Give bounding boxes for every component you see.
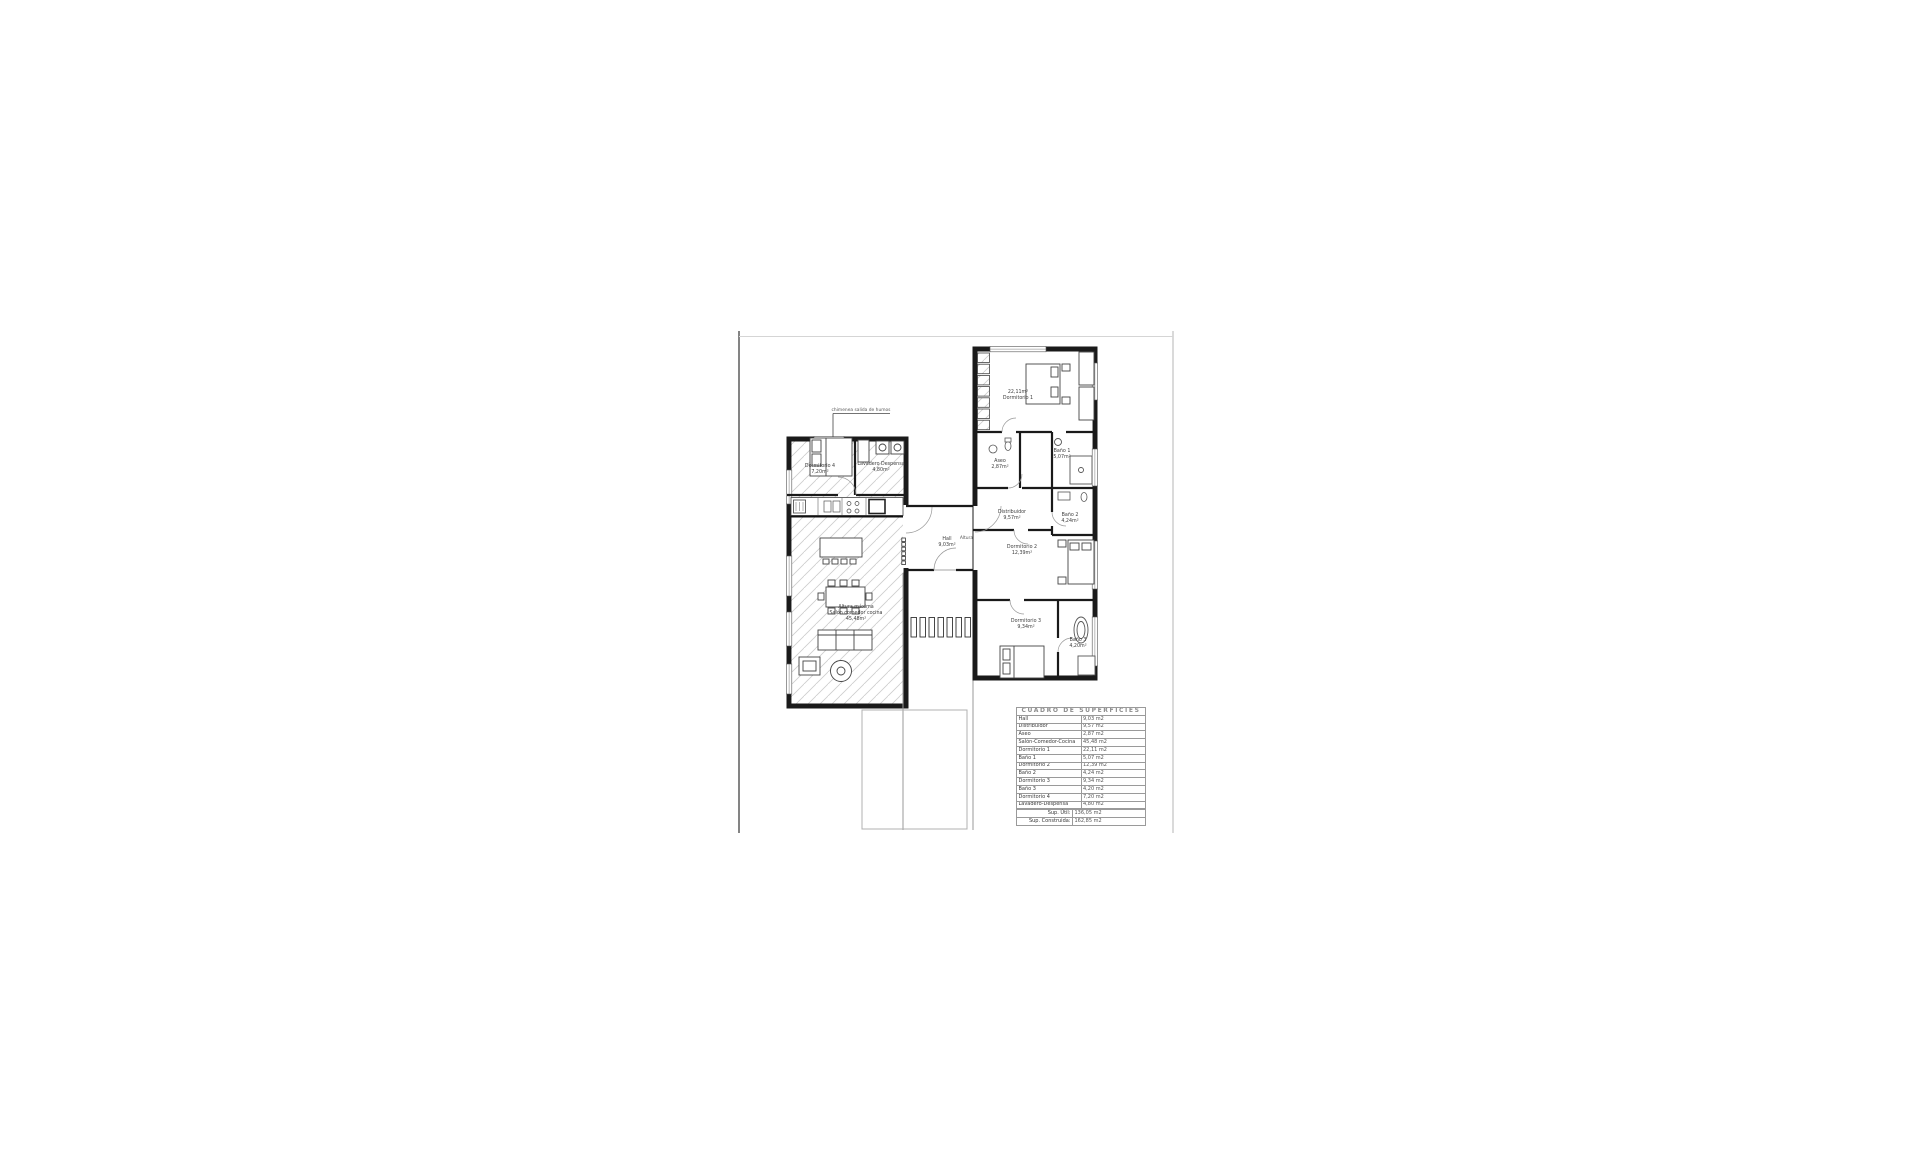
room-label-bano1-name: Baño 1 [1054, 448, 1071, 454]
wardrobe-strip [978, 353, 990, 430]
total-label: Sup. Útil: [1017, 810, 1073, 818]
kitchen-island [820, 538, 862, 564]
table-row: Dormitorio 39,34 m2 [1017, 778, 1146, 786]
total-value: 136,05 m2 [1073, 810, 1146, 818]
row-value: 9,34 m2 [1081, 778, 1146, 786]
room-label-aseo-name: Aseo [994, 458, 1006, 464]
side-table [799, 657, 820, 675]
room-label-salon-note: Altura máxima [838, 603, 873, 610]
room-label-salon-name: Salón comedor cocina [829, 609, 882, 616]
row-value: 45,48 m2 [1081, 739, 1146, 747]
row-label: Distribuidor [1017, 723, 1082, 731]
table-row: Dormitorio 122,11 m2 [1017, 746, 1146, 754]
door-arc [906, 507, 932, 533]
sofa [818, 630, 872, 650]
row-value: 7,20 m2 [1081, 793, 1146, 801]
terrace-outline [862, 710, 967, 829]
table-row: Salón-Comedor-Cocina45,48 m2 [1017, 739, 1146, 747]
row-label: Hall [1017, 715, 1082, 723]
left-wing: chimenea salida de humos Dormitorio 4 7,… [786, 407, 932, 708]
room-label-dormitorio4-area: 7,20m² [811, 469, 828, 475]
table-total-row: Sup. Útil:136,05 m2 [1017, 810, 1146, 818]
row-label: Aseo [1017, 731, 1082, 739]
table-row: Dormitorio 212,39 m2 [1017, 762, 1146, 770]
room-label-dormitorio1-area: 22,11m² [1008, 389, 1028, 395]
room-label-distribuidor-area: 9,57m² [1003, 515, 1020, 521]
chimney-annotation-text: chimenea salida de humos [832, 407, 892, 413]
chimney-annotation: chimenea salida de humos [832, 407, 892, 437]
room-label-hall-name: Hall [942, 536, 951, 542]
room-label-dormitorio3-name: Dormitorio 3 [1011, 618, 1041, 624]
row-value: 4,24 m2 [1081, 770, 1146, 778]
room-label-dormitorio4-name: Dormitorio 4 [805, 463, 835, 469]
kitchen-counter [791, 498, 903, 517]
table-title: CUADRO DE SUPERFICIES [1017, 708, 1146, 716]
table-row: Distribuidor9,57 m2 [1017, 723, 1146, 731]
table-row: Hall9,03 m2 [1017, 715, 1146, 723]
row-value: 4,20 m2 [1081, 785, 1146, 793]
row-label: Dormitorio 1 [1017, 746, 1082, 754]
row-label: Lavadero-Despensa [1017, 801, 1082, 809]
door-arc [934, 548, 956, 570]
table-row: Baño 15,07 m2 [1017, 754, 1146, 762]
bed-dormitorio-3 [1000, 646, 1044, 678]
room-label-salon-area: 45,48m² [846, 616, 866, 622]
row-label: Baño 3 [1017, 785, 1082, 793]
row-label: Salón-Comedor-Cocina [1017, 739, 1082, 747]
room-label-dormitorio1-name: Dormitorio 1 [1003, 395, 1033, 401]
row-label: Dormitorio 4 [1017, 793, 1082, 801]
room-label-distribuidor-name: Distribuidor [998, 509, 1026, 515]
room-label-dormitorio2-name: Dormitorio 2 [1007, 544, 1037, 550]
room-label-bano2-name: Baño 2 [1062, 512, 1079, 518]
room-label-bano3-name: Baño 3 [1070, 637, 1087, 643]
row-value: 2,87 m2 [1081, 731, 1146, 739]
table-row: Dormitorio 47,20 m2 [1017, 793, 1146, 801]
room-label-lavadero-name: Lavadero Despensa [857, 461, 904, 467]
row-value: 5,07 m2 [1081, 754, 1146, 762]
room-label-dormitorio2-area: 12,39m² [1012, 550, 1032, 556]
row-value: 4,80 m2 [1081, 801, 1146, 809]
room-label-hall-area: 9,03m² [938, 542, 955, 548]
room-label-bano2-area: 4,24m² [1061, 518, 1078, 524]
row-value: 9,57 m2 [1081, 723, 1146, 731]
total-value: 162,85 m2 [1073, 818, 1146, 826]
surface-table: CUADRO DE SUPERFICIES Hall9,03 m2 Distri… [1016, 707, 1146, 826]
row-value: 9,03 m2 [1081, 715, 1146, 723]
room-label-bano1-area: 5,07m² [1053, 454, 1070, 460]
table-title-row: CUADRO DE SUPERFICIES [1017, 708, 1146, 716]
total-label: Sup. Construida: [1017, 818, 1073, 826]
row-label: Baño 2 [1017, 770, 1082, 778]
floor-plan-drawing: chimenea salida de humos Dormitorio 4 7,… [0, 0, 1920, 1166]
room-label-aseo-area: 2,87m² [991, 464, 1008, 470]
table-total-row: Sup. Construida:162,85 m2 [1017, 818, 1146, 826]
table-row: Baño 34,20 m2 [1017, 785, 1146, 793]
right-wing: 22,11m² Dormitorio 1 Aseo 2,87m² Baño 1 … [973, 346, 1098, 680]
row-label: Dormitorio 3 [1017, 778, 1082, 786]
room-label-dormitorio3-area: 9,34m² [1017, 624, 1034, 630]
row-label: Dormitorio 2 [1017, 762, 1082, 770]
coffee-table [831, 661, 852, 682]
pergola-slats [911, 618, 971, 638]
table-row: Baño 24,24 m2 [1017, 770, 1146, 778]
row-value: 12,39 m2 [1081, 762, 1146, 770]
room-label-bano3-area: 4,20m² [1069, 643, 1086, 649]
row-label: Baño 1 [1017, 754, 1082, 762]
room-label-lavadero-area: 4,80m² [872, 467, 889, 473]
table-row: Lavadero-Despensa4,80 m2 [1017, 801, 1146, 809]
row-value: 22,11 m2 [1081, 746, 1146, 754]
table-row: Aseo2,87 m2 [1017, 731, 1146, 739]
